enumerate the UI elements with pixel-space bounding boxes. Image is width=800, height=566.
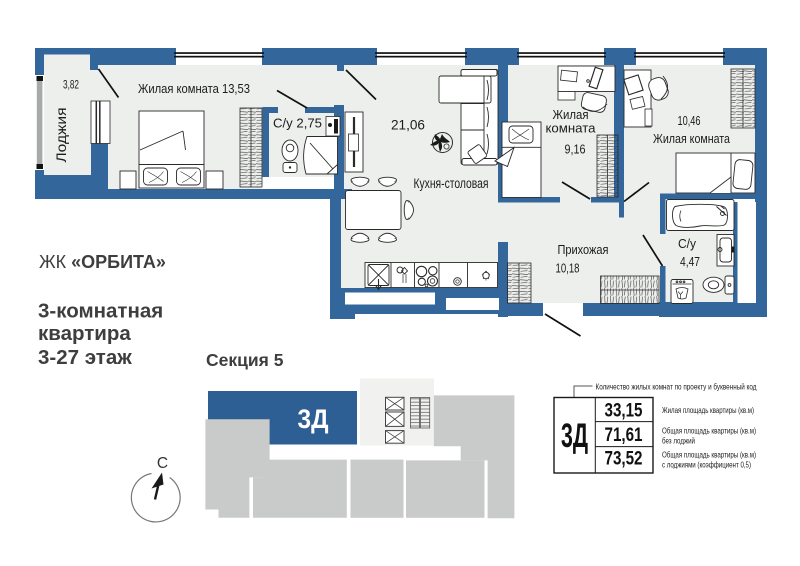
svg-text:3Д: 3Д — [561, 417, 588, 455]
svg-text:С/у 2,75: С/у 2,75 — [273, 117, 322, 131]
svg-text:ЖК «ОРБИТА»: ЖК «ОРБИТА» — [39, 252, 166, 272]
svg-text:3-комнатная: 3-комнатная — [38, 300, 163, 323]
svg-text:квартира: квартира — [38, 322, 131, 345]
svg-text:Количество жилых комнат по про: Количество жилых комнат по проекту и бук… — [596, 382, 757, 392]
svg-text:С: С — [157, 455, 168, 472]
svg-text:9,16: 9,16 — [565, 143, 586, 157]
svg-text:Общая площадь квартиры (кв.м): Общая площадь квартиры (кв.м) — [662, 450, 756, 460]
svg-text:73,52: 73,52 — [605, 449, 643, 470]
svg-text:Жилая: Жилая — [553, 108, 589, 122]
svg-text:без лоджий: без лоджий — [662, 436, 695, 446]
svg-text:71,61: 71,61 — [605, 425, 643, 446]
svg-text:3-27 этаж: 3-27 этаж — [38, 346, 132, 369]
svg-text:Жилая площадь квартиры (кв.м): Жилая площадь квартиры (кв.м) — [662, 405, 754, 415]
svg-text:Жилая комната: Жилая комната — [653, 132, 730, 146]
svg-text:Секция 5: Секция 5 — [206, 350, 284, 370]
svg-text:с лоджиями (коэффициент 0,5): с лоджиями (коэффициент 0,5) — [662, 460, 751, 470]
svg-text:Общая площадь квартиры (кв.м): Общая площадь квартиры (кв.м) — [662, 426, 756, 436]
svg-text:Кухня-столовая: Кухня-столовая — [414, 176, 489, 191]
svg-text:3Д: 3Д — [298, 404, 329, 434]
svg-text:С/у: С/у — [678, 237, 697, 251]
svg-text:10,18: 10,18 — [556, 262, 580, 276]
svg-text:комната: комната — [546, 122, 596, 136]
svg-text:10,46: 10,46 — [678, 114, 701, 128]
svg-text:33,15: 33,15 — [605, 401, 643, 422]
svg-text:Жилая комната 13,53: Жилая комната 13,53 — [138, 81, 250, 96]
svg-text:4,47: 4,47 — [680, 255, 700, 269]
svg-text:Лоджия: Лоджия — [54, 108, 69, 163]
svg-text:21,06: 21,06 — [391, 118, 425, 133]
svg-text:3,82: 3,82 — [63, 78, 79, 92]
svg-text:Прихожая: Прихожая — [558, 243, 609, 257]
